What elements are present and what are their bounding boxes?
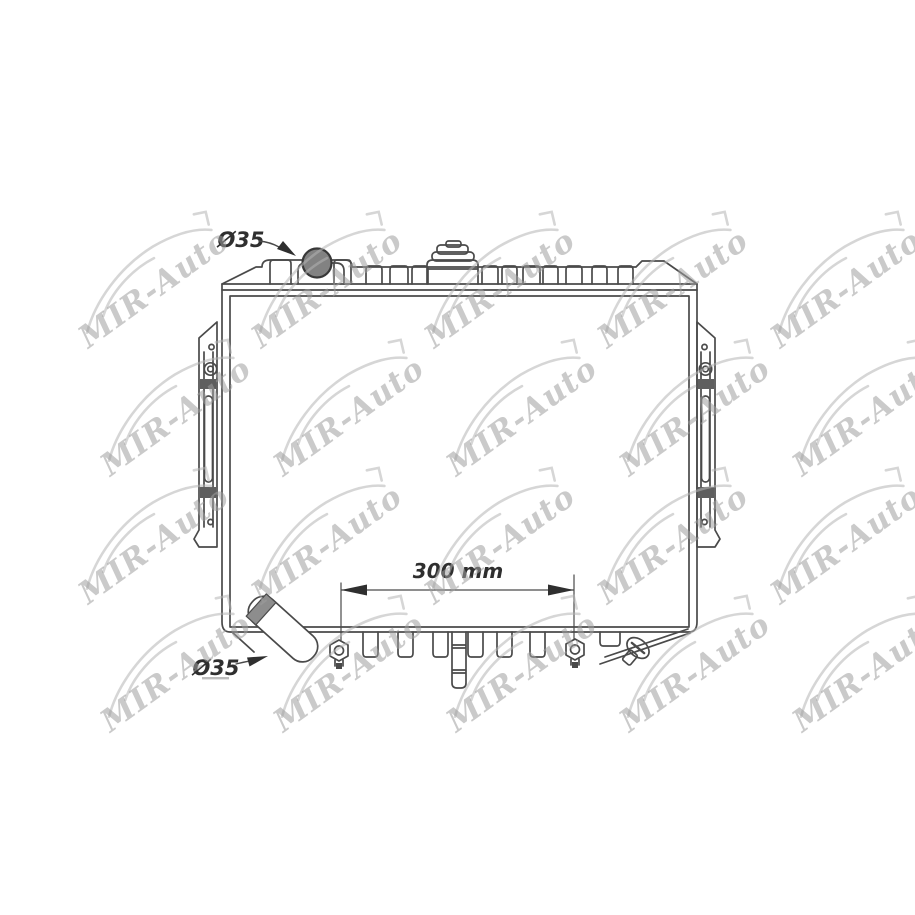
watermark-text: MIR-Auto xyxy=(612,350,777,484)
watermark-text: MIR-Auto xyxy=(763,478,915,612)
watermark-text: MIR-Auto xyxy=(71,222,236,356)
watermark-instance: MIR-Auto xyxy=(406,207,582,356)
watermark-instance: MIR-Auto xyxy=(60,463,236,612)
watermark-instance: MIR-Auto xyxy=(82,335,258,484)
watermark-instance: MIR-Auto xyxy=(579,207,755,356)
watermark-text: MIR-Auto xyxy=(439,350,604,484)
watermark-instance: MIR-Auto xyxy=(752,207,915,356)
watermark-text: MIR-Auto xyxy=(590,478,755,612)
watermark-instance: MIR-Auto xyxy=(752,463,915,612)
dimension-arrow-right xyxy=(548,585,574,596)
filler-cap xyxy=(427,241,478,284)
watermark-layer: MIR-AutoMIR-AutoMIR-AutoMIR-AutoMIR-Auto… xyxy=(60,207,915,740)
bottom-center-tube xyxy=(452,632,466,688)
outlet-arrow xyxy=(247,656,268,667)
inlet-arrow xyxy=(277,241,296,256)
fine-print-smudge xyxy=(202,677,229,679)
radiator-product-image: 300 mm Ø35 Ø35 MIR-AutoMIR-AutoMIR-AutoM… xyxy=(0,0,915,915)
watermark-instance: MIR-Auto xyxy=(774,591,915,740)
watermark-text: MIR-Auto xyxy=(93,350,258,484)
radiator-drawing-canvas: 300 mm Ø35 Ø35 MIR-AutoMIR-AutoMIR-AutoM… xyxy=(0,0,915,915)
watermark-text: MIR-Auto xyxy=(785,350,915,484)
outlet-pipe xyxy=(242,591,323,668)
watermark-text: MIR-Auto xyxy=(71,478,236,612)
watermark-instance: MIR-Auto xyxy=(255,335,431,484)
watermark-instance: MIR-Auto xyxy=(579,463,755,612)
watermark-car-swoosh-icon xyxy=(908,336,915,356)
watermark-instance: MIR-Auto xyxy=(60,207,236,356)
watermark-instance: MIR-Auto xyxy=(774,335,915,484)
watermark-text: MIR-Auto xyxy=(244,478,409,612)
watermark-instance: MIR-Auto xyxy=(428,335,604,484)
watermark-text: MIR-Auto xyxy=(763,222,915,356)
watermark-car-swoosh-icon xyxy=(908,592,915,612)
watermark-text: MIR-Auto xyxy=(266,350,431,484)
watermark-text: MIR-Auto xyxy=(785,606,915,740)
dimension-arrow-left xyxy=(341,585,367,596)
